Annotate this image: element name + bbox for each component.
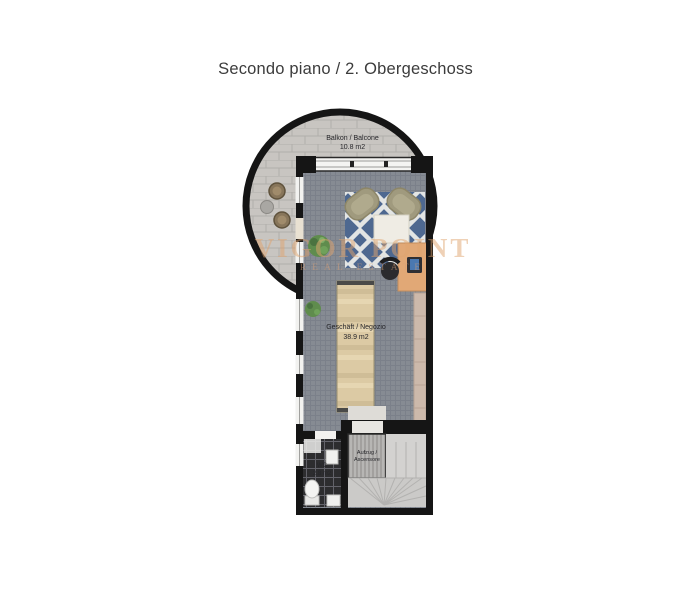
display-counter	[337, 281, 374, 412]
wall-shelf	[414, 293, 426, 428]
plant-icon	[308, 235, 330, 257]
elevator-label: Aufzug / Ascensore	[345, 450, 389, 464]
wc-label: WC 2.8 m2	[302, 462, 342, 478]
bottom-wall	[296, 508, 433, 515]
door-opening	[352, 421, 383, 433]
elevator-name-line1: Aufzug /	[345, 450, 389, 457]
laptop-screen	[410, 259, 419, 270]
door-swing	[348, 406, 386, 420]
shop-label: Geschäft / Negozio 38.9 m2	[303, 323, 409, 342]
coffee-table	[374, 215, 409, 243]
right-wall	[426, 157, 433, 515]
floor-plan-drawing	[0, 0, 691, 600]
wc-name: WC	[302, 462, 342, 470]
balcony-table	[261, 201, 274, 214]
plant-icon	[305, 301, 321, 317]
office-chair	[381, 259, 399, 280]
elevator-name-line2: Ascensore	[345, 457, 389, 464]
wc-cabinet	[327, 495, 340, 506]
planter-top	[278, 216, 287, 225]
wc-wall	[341, 431, 348, 515]
floor-plan-page: Secondo piano / 2. Obergeschoss Balkon /…	[0, 0, 691, 600]
wc-door-opening	[315, 431, 336, 439]
page-title: Secondo piano / 2. Obergeschoss	[0, 60, 691, 79]
balcony-area: 10.8 m2	[300, 143, 405, 152]
planter-top	[273, 187, 282, 196]
balcony-name: Balkon / Balcone	[300, 134, 405, 143]
wc-door-swing	[304, 439, 321, 453]
shop-area: 38.9 m2	[303, 333, 409, 343]
balcony-label: Balkon / Balcone 10.8 m2	[300, 134, 405, 152]
window	[296, 177, 304, 466]
shop-name: Geschäft / Negozio	[303, 323, 409, 333]
wc-area: 2.8 m2	[302, 470, 342, 478]
toilet	[305, 480, 319, 505]
window-band	[303, 158, 425, 172]
